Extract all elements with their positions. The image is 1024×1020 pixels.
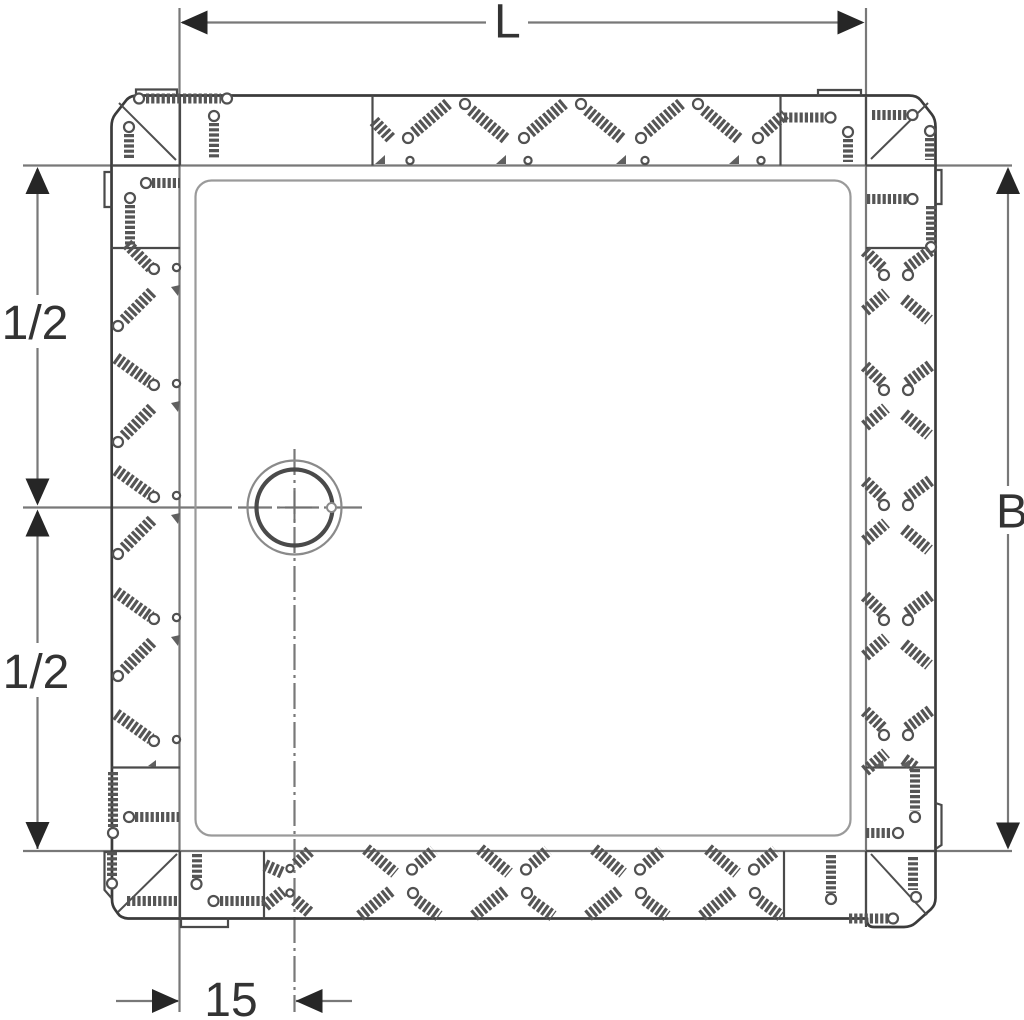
svg-text:15: 15 — [204, 974, 257, 1020]
svg-text:1/2: 1/2 — [3, 646, 70, 699]
svg-text:B: B — [996, 486, 1024, 539]
svg-text:L: L — [494, 0, 521, 49]
svg-text:1/2: 1/2 — [2, 297, 69, 350]
